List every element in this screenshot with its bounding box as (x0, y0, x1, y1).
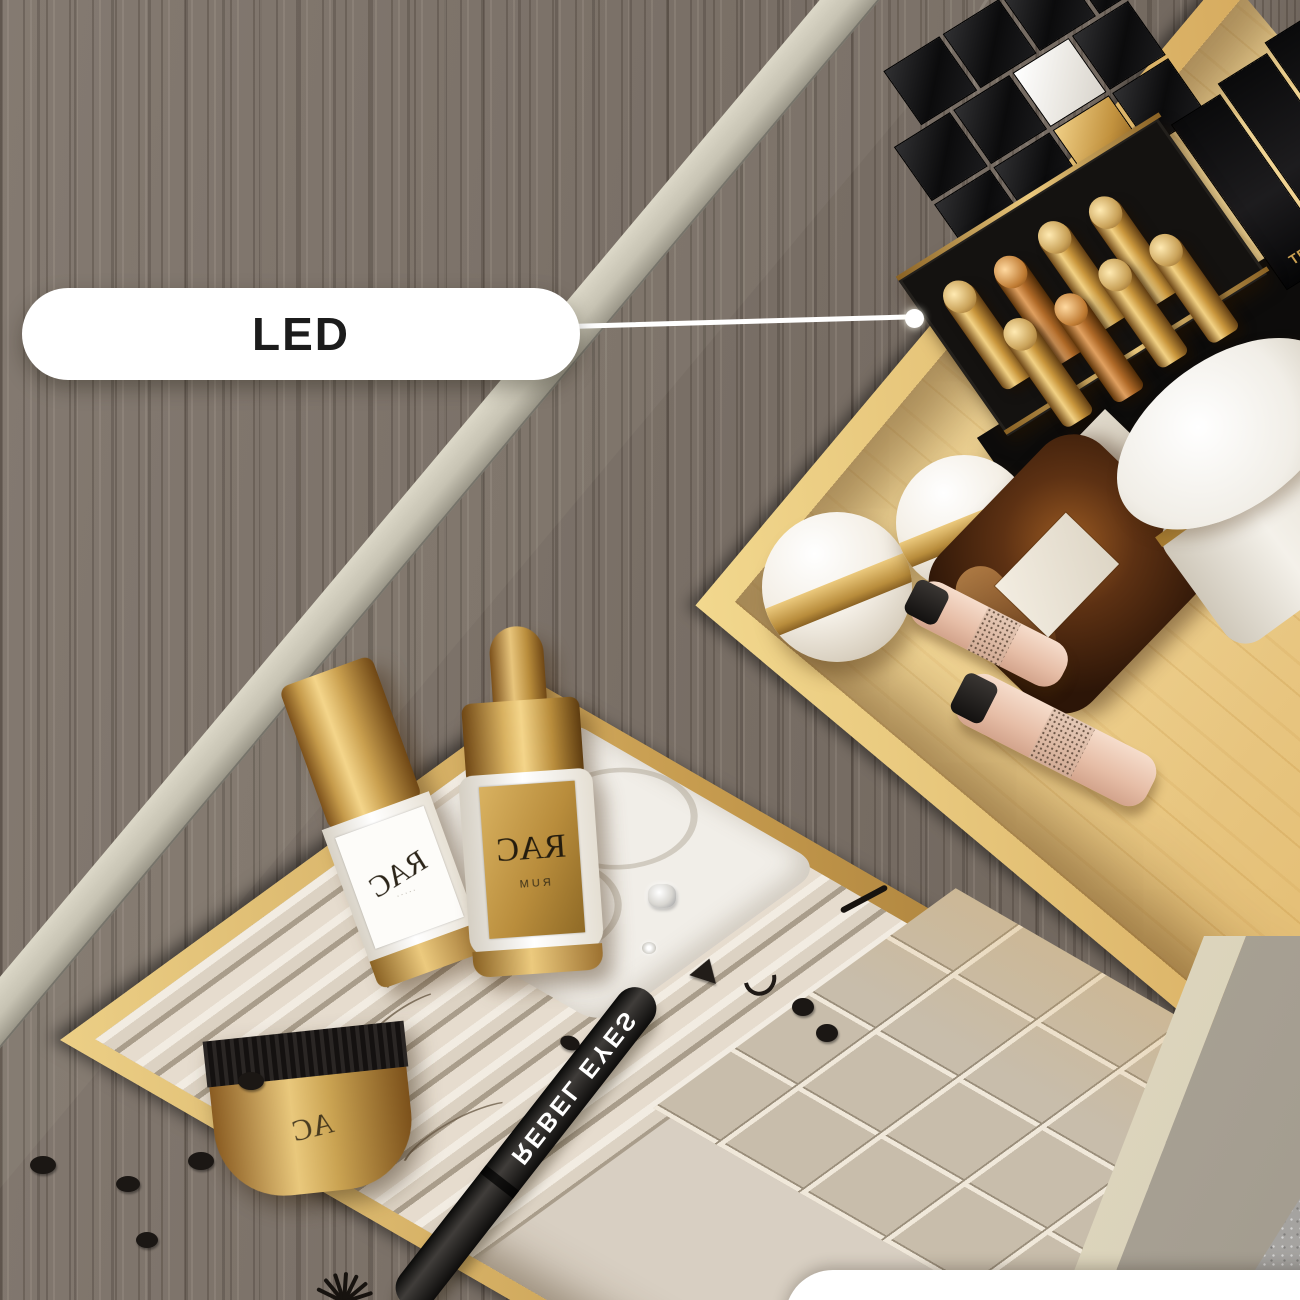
serum-dropper-bottle: RAC RUM (448, 622, 606, 982)
gold-band (762, 547, 912, 644)
led-callout-pill: LED (22, 288, 580, 380)
lash-pin-fan (300, 1262, 390, 1300)
black-stud (116, 1176, 140, 1192)
brand-text-mirrored: RAC (495, 827, 567, 870)
gold-collar (461, 696, 584, 780)
partial-callout-pill (785, 1270, 1300, 1300)
stud-earring (642, 942, 656, 954)
round-stud (816, 1024, 838, 1042)
serum-text-mirrored: RUM (516, 877, 551, 891)
callout-endpoint-dot (905, 309, 924, 328)
brand-text-mirrored: AC (289, 1106, 338, 1149)
vanity-product-photo: TF TF TF RAC (0, 0, 1300, 1300)
led-callout-label: LED (252, 307, 350, 361)
black-stud (136, 1232, 158, 1248)
black-stud (30, 1156, 56, 1174)
round-stud (792, 998, 814, 1016)
black-lid-cream-jar: AC (187, 925, 428, 1214)
gold-label: RAC RUM (479, 781, 585, 939)
monogram-label: TF (1285, 244, 1300, 267)
crystal-ring (648, 884, 676, 908)
black-stud (188, 1152, 214, 1170)
cream-jar-sphere (762, 512, 912, 662)
black-stud (238, 1072, 264, 1090)
